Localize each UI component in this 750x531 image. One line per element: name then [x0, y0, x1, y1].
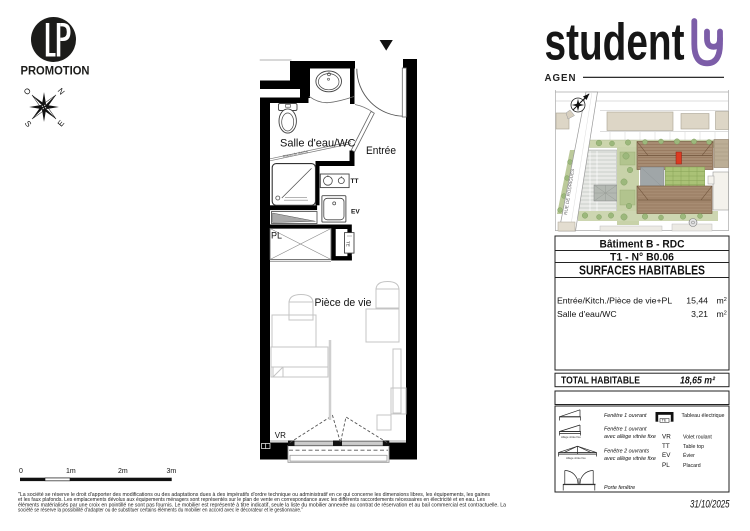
svg-text:Table top: Table top	[683, 444, 704, 450]
svg-text:31/10/2025: 31/10/2025	[690, 499, 730, 511]
svg-text:avec allège vitrée fixe: avec allège vitrée fixe	[604, 456, 656, 462]
svg-text:Fenêtre 1 ouvrant: Fenêtre 1 ouvrant	[604, 427, 647, 433]
svg-text:EV: EV	[351, 208, 360, 215]
svg-text:Allège vitrée fixe: Allège vitrée fixe	[561, 435, 581, 439]
svg-text:Fenêtre 1 ouvrant: Fenêtre 1 ouvrant	[604, 413, 647, 419]
svg-text:Entrée/Kitch./Pièce de vie+PL: Entrée/Kitch./Pièce de vie+PL	[557, 296, 672, 306]
svg-text:18,65 m²: 18,65 m²	[680, 374, 715, 386]
svg-text:Allège vitrée fixe: Allège vitrée fixe	[566, 456, 586, 460]
svg-text:15,44: 15,44	[686, 296, 708, 306]
svg-text:2m: 2m	[118, 468, 128, 475]
svg-text:PROMOTION: PROMOTION	[21, 66, 90, 78]
svg-text:VR: VR	[662, 434, 671, 441]
svg-text:TT: TT	[662, 443, 670, 450]
svg-text:Salle d'eau/WC: Salle d'eau/WC	[280, 138, 356, 150]
svg-text:student: student	[545, 14, 685, 72]
svg-text:Pièce de vie: Pièce de vie	[315, 297, 372, 309]
svg-text:Entrée: Entrée	[366, 145, 396, 157]
svg-text:T1 - N° B0.06: T1 - N° B0.06	[610, 252, 674, 264]
svg-text:Placard: Placard	[683, 463, 701, 469]
svg-text:TE: TE	[346, 241, 351, 247]
svg-text:3m: 3m	[167, 468, 177, 475]
svg-text:PL: PL	[271, 231, 282, 241]
svg-text:0: 0	[19, 468, 23, 475]
svg-text:TOTAL HABITABLE: TOTAL HABITABLE	[561, 374, 640, 386]
svg-text:SURFACES HABITABLES: SURFACES HABITABLES	[579, 264, 705, 278]
svg-text:Fenêtre 2 ouvrants: Fenêtre 2 ouvrants	[604, 449, 650, 455]
svg-text:avec allège vitrée fixe: avec allège vitrée fixe	[604, 434, 656, 440]
svg-text:Porte fenêtre: Porte fenêtre	[604, 485, 635, 491]
svg-text:3,21: 3,21	[691, 309, 708, 319]
svg-text:VR: VR	[275, 431, 286, 440]
svg-text:PL: PL	[662, 462, 670, 469]
svg-text:AGEN: AGEN	[545, 73, 577, 84]
svg-text:TT: TT	[351, 178, 359, 185]
svg-text:Tableau électrique: Tableau électrique	[682, 413, 725, 419]
svg-text:Bâtiment B - RDC: Bâtiment B - RDC	[600, 239, 685, 251]
svg-text:EV: EV	[662, 452, 671, 459]
svg-text:TE: TE	[662, 419, 667, 423]
svg-text:Volet roulant: Volet roulant	[683, 435, 712, 441]
svg-text:Évier: Évier	[683, 452, 695, 459]
svg-text:1m: 1m	[66, 468, 76, 475]
svg-text:société se réserve la possibil: société se réserve la possibilité d'adap…	[18, 508, 303, 514]
svg-text:Salle d'eau/WC: Salle d'eau/WC	[557, 309, 617, 319]
